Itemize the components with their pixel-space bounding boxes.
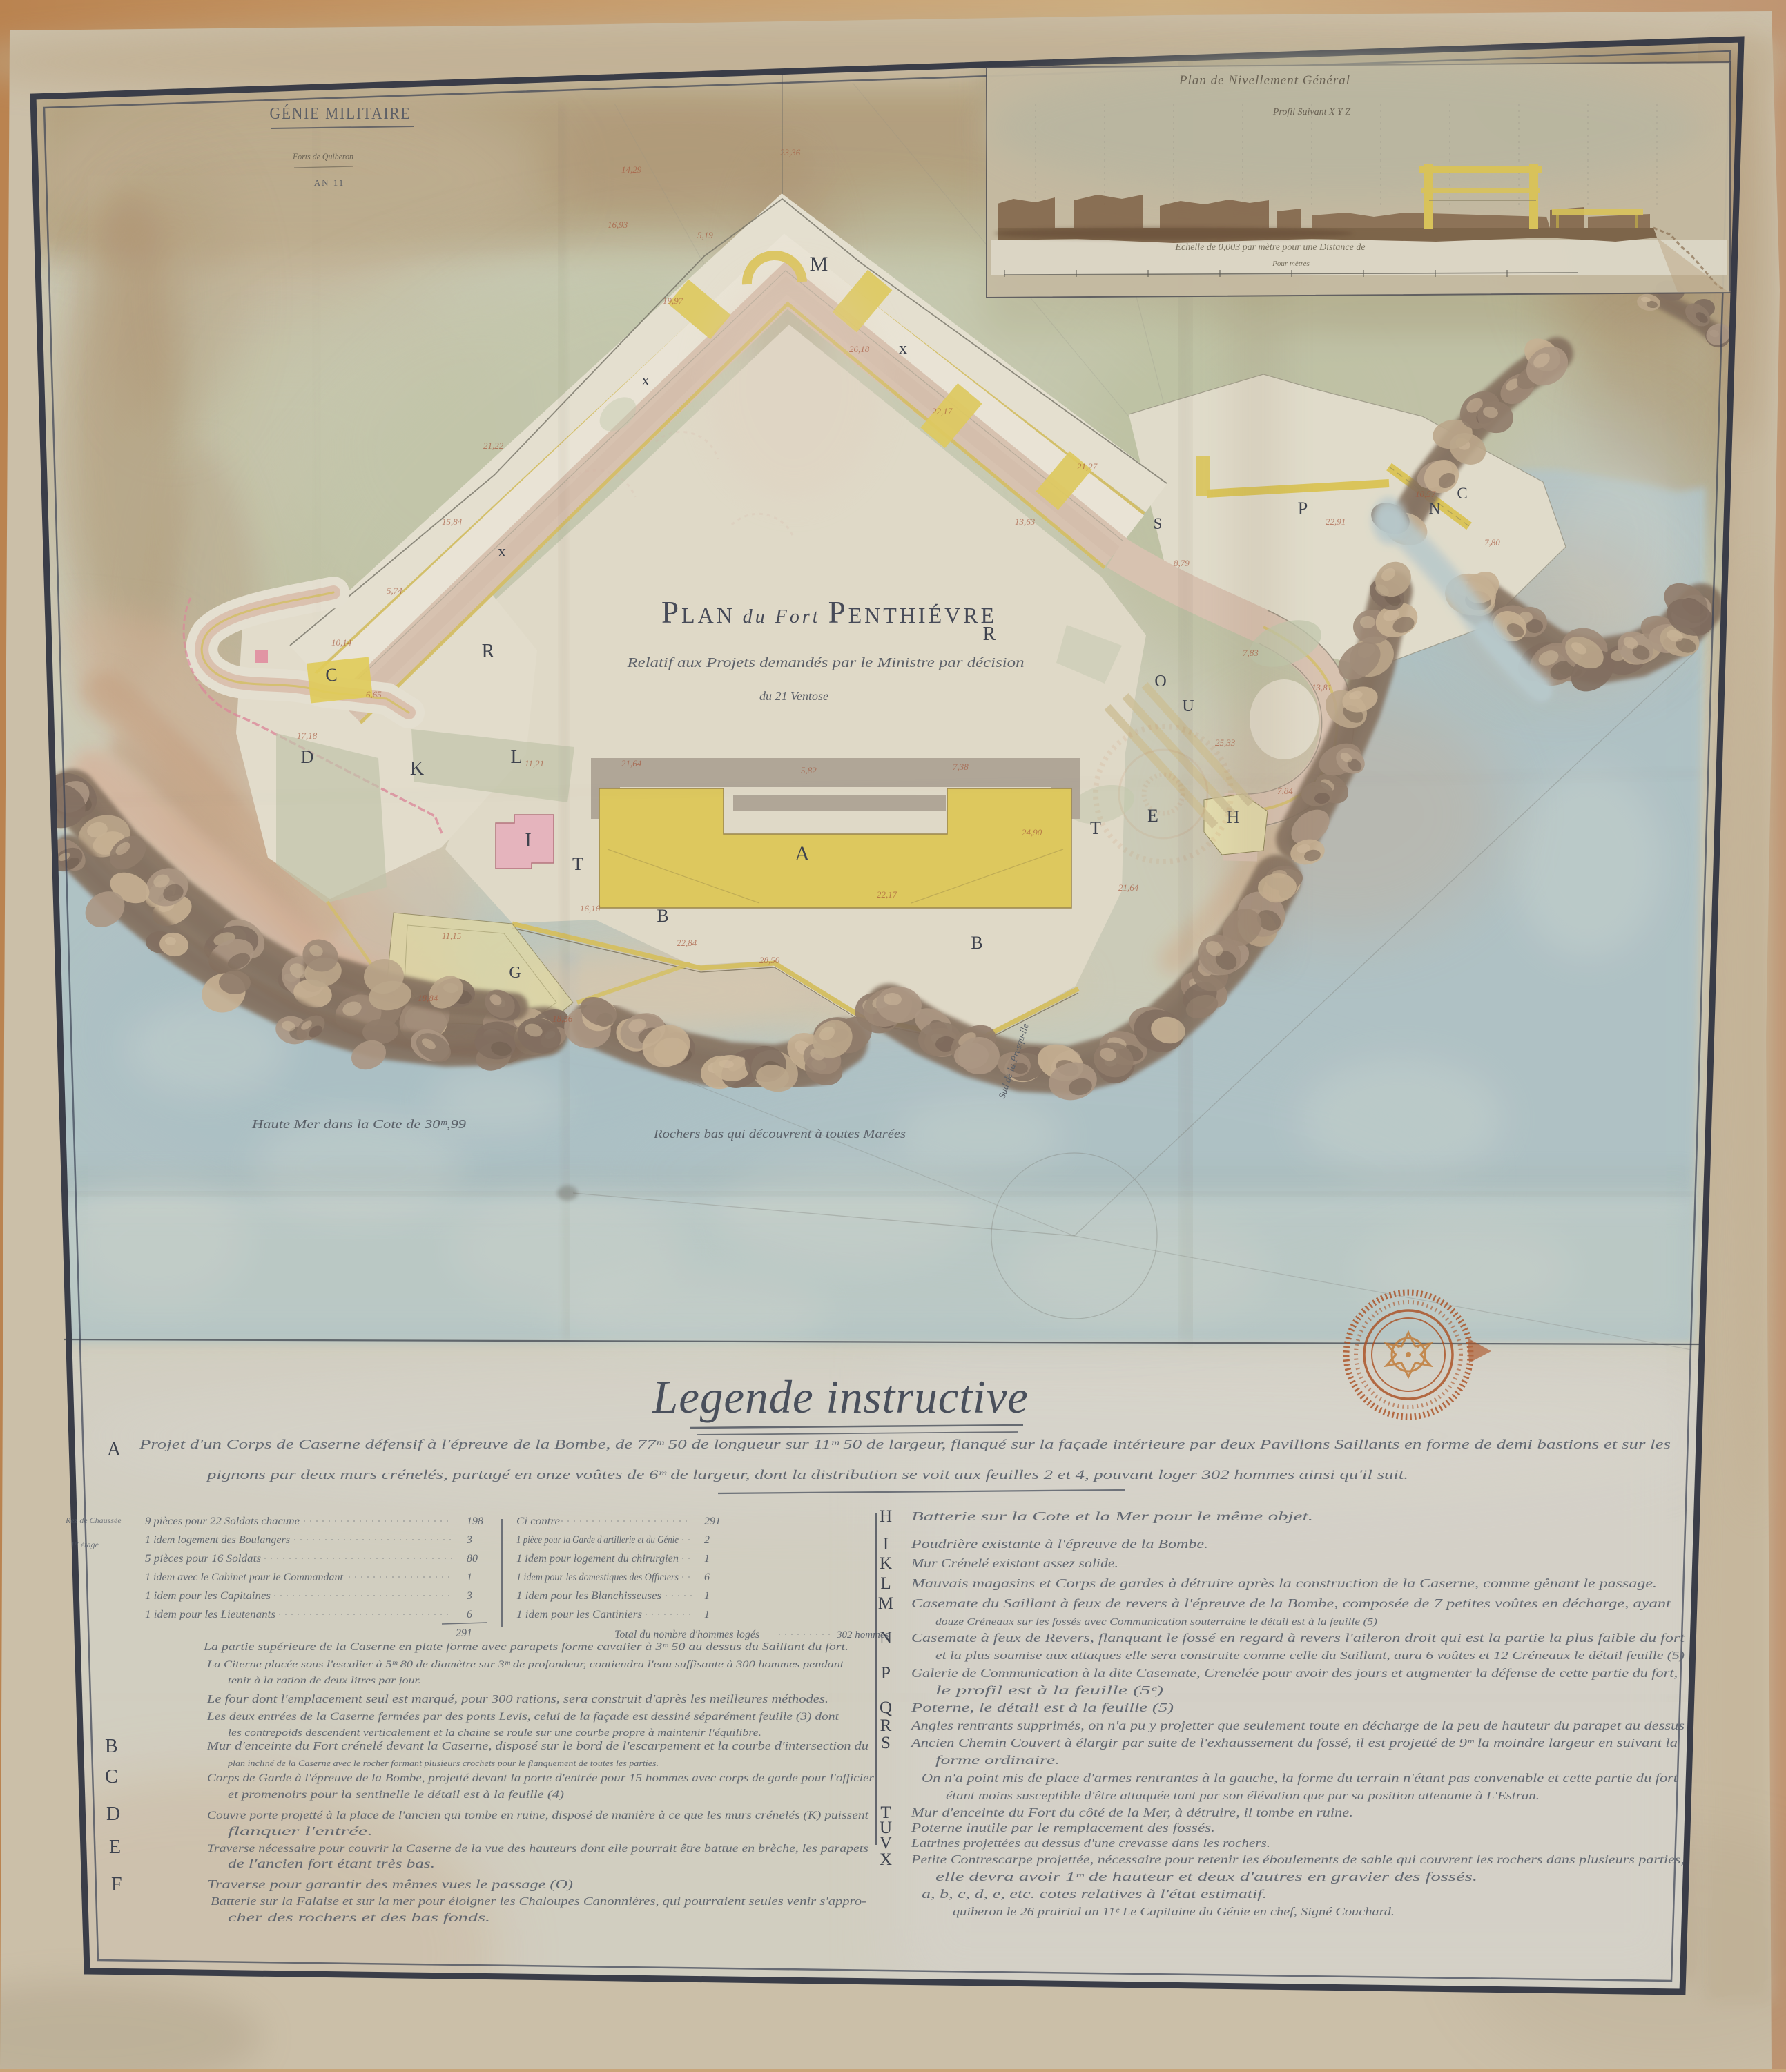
svg-text:forme ordinaire.: forme ordinaire. [935, 1753, 1060, 1767]
svg-text:5,19: 5,19 [697, 230, 713, 240]
svg-text:D: D [106, 1803, 120, 1825]
svg-text:I: I [883, 1535, 889, 1553]
svg-text:H: H [880, 1507, 892, 1526]
svg-text:7,84: 7,84 [1277, 786, 1293, 796]
svg-text:B: B [105, 1736, 118, 1757]
svg-text:Profil Suivant X Y Z: Profil Suivant X Y Z [1272, 107, 1350, 117]
svg-text:5,82: 5,82 [801, 765, 817, 775]
svg-text:douze Créneaux sur les fossés: douze Créneaux sur les fossés avec Commu… [935, 1616, 1377, 1627]
svg-text:Forts de Quiberon: Forts de Quiberon [292, 151, 353, 162]
svg-text:Corps de Garde à l'épreuve de: Corps de Garde à l'épreuve de la Bombe, … [207, 1772, 875, 1784]
svg-text:1 idem logement des Boulangers: 1 idem logement des Boulangers [145, 1534, 290, 1546]
svg-text:10,57: 10,57 [1415, 489, 1436, 499]
svg-text:V: V [880, 1834, 892, 1852]
svg-text:Rez de Chaussée: Rez de Chaussée [65, 1516, 122, 1525]
svg-text:18,56: 18,56 [552, 1014, 573, 1024]
svg-text:x: x [498, 543, 506, 561]
svg-text:Angles rentrants supprimés, on: Angles rentrants supprimés, on n'a pu y … [911, 1718, 1685, 1732]
svg-text:291: 291 [704, 1516, 721, 1527]
svg-text:21,64: 21,64 [621, 758, 642, 768]
svg-text:x: x [899, 340, 907, 358]
svg-text:1: 1 [704, 1553, 710, 1565]
svg-text:Projet d'un Corps de Caserne d: Projet d'un Corps de Caserne défensif à … [139, 1437, 1671, 1452]
svg-text:Ci contre: Ci contre [516, 1516, 560, 1527]
svg-text:19,97: 19,97 [663, 296, 683, 306]
svg-text:E: E [109, 1837, 121, 1858]
svg-text:17,18: 17,18 [297, 730, 318, 741]
svg-text:B: B [657, 906, 668, 926]
svg-text:A: A [795, 842, 810, 865]
svg-text:Ancien Chemin Couvert à élargi: Ancien Chemin Couvert à élargir par suit… [911, 1736, 1678, 1750]
svg-text:La partie supérieure de la Cas: La partie supérieure de la Caserne en pl… [203, 1641, 848, 1653]
svg-text:Echelle de 0,003 par mètre pou: Echelle de 0,003 par mètre pour une Dist… [1174, 242, 1365, 253]
svg-text:13,63: 13,63 [1015, 516, 1036, 527]
svg-text:11,15: 11,15 [442, 931, 462, 941]
svg-text:5,74: 5,74 [387, 585, 402, 596]
svg-text:5 pièces pour 16 Soldats: 5 pièces pour 16 Soldats [145, 1553, 261, 1565]
svg-text:1ᵉʳ étage: 1ᵉʳ étage [70, 1540, 99, 1549]
svg-text:N: N [1429, 500, 1441, 517]
svg-text:15,84: 15,84 [442, 516, 463, 527]
svg-text:A: A [107, 1439, 122, 1460]
svg-text:G: G [509, 964, 521, 982]
svg-text:les contrepoids descendent ver: les contrepoids descendent verticalement… [228, 1727, 761, 1739]
svg-text:28,50: 28,50 [759, 955, 780, 965]
svg-text:R: R [983, 623, 996, 645]
svg-text:21,64: 21,64 [1118, 882, 1139, 893]
svg-text:Legende instructive: Legende instructive [652, 1371, 1029, 1423]
svg-text:3: 3 [466, 1534, 472, 1546]
svg-text:elle devra avoir 1ᵐ de hauteur: elle devra avoir 1ᵐ de hauteur et deux d… [935, 1870, 1477, 1884]
svg-text:Q: Q [880, 1698, 892, 1717]
svg-text:K: K [410, 758, 424, 780]
svg-text:25,33: 25,33 [1215, 737, 1236, 748]
svg-text:13,81: 13,81 [1312, 682, 1332, 693]
svg-text:tenir à la ration de deux litr: tenir à la ration de deux litres par jou… [228, 1675, 421, 1685]
svg-text:23,36: 23,36 [780, 147, 801, 157]
svg-text:L: L [510, 746, 522, 768]
svg-text:M: M [878, 1594, 893, 1613]
svg-text:le profil est à la feuille (5ᵉ: le profil est à la feuille (5ᵉ) [935, 1683, 1163, 1697]
svg-text:14,29: 14,29 [621, 164, 642, 175]
svg-text:Mauvais magasins et Corps de g: Mauvais magasins et Corps de gardes à dé… [911, 1576, 1657, 1590]
svg-text:6: 6 [467, 1609, 472, 1620]
svg-text:flanquer l'entrée.: flanquer l'entrée. [228, 1824, 373, 1838]
svg-text:Relatif aux Projets demandés p: Relatif aux Projets demandés par le Mini… [626, 655, 1024, 670]
svg-text:X: X [880, 1850, 892, 1869]
svg-text:du 21 Ventose: du 21 Ventose [759, 689, 828, 703]
svg-text:Haute Mer dans la Cote de 30ᵐ,: Haute Mer dans la Cote de 30ᵐ,99 [251, 1117, 466, 1131]
svg-text:Traverse pour garantir des mêm: Traverse pour garantir des mêmes vues le… [207, 1877, 573, 1891]
svg-text:Les deux entrées de la Caserne: Les deux entrées de la Caserne fermées p… [206, 1711, 839, 1723]
svg-text:Mur d'enceinte du Fort du côté: Mur d'enceinte du Fort du côté de la Mer… [911, 1805, 1353, 1819]
svg-text:Rochers bas qui découvrent à t: Rochers bas qui découvrent à toutes Maré… [653, 1127, 906, 1141]
svg-text:1 pièce pour la Garde d'artill: 1 pièce pour la Garde d'artillerie et du… [516, 1534, 679, 1546]
svg-text:Latrines projettées au dessus: Latrines projettées au dessus d'une crev… [911, 1837, 1270, 1850]
svg-text:P: P [1298, 498, 1308, 519]
svg-text:Pour mètres: Pour mètres [1272, 260, 1310, 268]
svg-text:Batterie sur la Falaise et sur: Batterie sur la Falaise et sur la mer po… [211, 1895, 866, 1908]
svg-text:Mur Crénelé existant assez sol: Mur Crénelé existant assez solide. [911, 1556, 1118, 1570]
svg-text:11,21: 11,21 [525, 758, 544, 768]
svg-text:R: R [482, 641, 495, 662]
svg-text:1: 1 [704, 1590, 710, 1602]
svg-text:2: 2 [704, 1534, 710, 1546]
svg-text:1 idem pour les domestiques de: 1 idem pour les domestiques des Officier… [516, 1571, 679, 1583]
svg-text:24,90: 24,90 [1022, 827, 1042, 837]
svg-text:de l'ancien fort étant très ba: de l'ancien fort étant très bas. [228, 1857, 435, 1870]
svg-text:Batterie sur la Cote et la Mer: Batterie sur la Cote et la Mer pour le m… [911, 1509, 1313, 1523]
svg-text:Poterne inutile par le remplac: Poterne inutile par le remplacement des … [911, 1821, 1215, 1834]
svg-text:26,18: 26,18 [849, 344, 870, 354]
svg-text:D: D [301, 747, 314, 767]
svg-text:21,27: 21,27 [1077, 461, 1098, 472]
svg-text:21,22: 21,22 [483, 440, 504, 451]
svg-text:étant moins susceptible d'être: étant moins susceptible d'être attaquée … [946, 1789, 1540, 1802]
svg-text:1: 1 [467, 1571, 472, 1583]
svg-text:9 pièces pour 22 Soldats chacu: 9 pièces pour 22 Soldats chacune [145, 1516, 300, 1527]
svg-text:S: S [881, 1734, 891, 1752]
svg-text:7,80: 7,80 [1484, 537, 1500, 548]
svg-text:Poudrière existante à l'épreuv: Poudrière existante à l'épreuve de la Bo… [911, 1537, 1208, 1551]
svg-text:Casemate du Saillant à feux de: Casemate du Saillant à feux de revers à … [911, 1596, 1672, 1610]
svg-text:Couvre porte projetté à la pla: Couvre porte projetté à la place de l'an… [207, 1810, 869, 1821]
svg-text:R: R [880, 1716, 892, 1735]
svg-text:On n'a point mis de place d'ar: On n'a point mis de place d'armes rentra… [922, 1771, 1678, 1785]
svg-text:16,16: 16,16 [580, 903, 601, 913]
svg-text:P: P [881, 1664, 891, 1683]
svg-text:291: 291 [456, 1627, 472, 1639]
svg-text:GÉNIE MILITAIRE: GÉNIE MILITAIRE [270, 105, 411, 123]
svg-text:C: C [1457, 485, 1467, 502]
svg-text:I: I [525, 830, 531, 851]
svg-text:plan incliné de la Caserne ave: plan incliné de la Caserne avec le roche… [227, 1759, 659, 1768]
svg-text:T: T [572, 854, 583, 874]
svg-text:et la plus soumise aux attaque: et la plus soumise aux attaques elle ser… [935, 1649, 1685, 1662]
svg-text:La Citerne placée sous l'escal: La Citerne placée sous l'escalier à 5ᵐ 8… [206, 1659, 844, 1670]
svg-text:16,93: 16,93 [608, 220, 628, 230]
svg-text:3: 3 [466, 1590, 472, 1602]
svg-text:80: 80 [467, 1553, 478, 1565]
svg-text:S: S [1154, 515, 1163, 532]
svg-text:7,83: 7,83 [1243, 648, 1259, 658]
svg-text:E: E [1147, 806, 1158, 826]
svg-text:22,17: 22,17 [877, 889, 897, 900]
svg-text:18,84: 18,84 [418, 993, 438, 1003]
svg-text:1 idem pour les Lieutenants: 1 idem pour les Lieutenants [145, 1609, 275, 1620]
svg-text:C: C [105, 1766, 118, 1788]
svg-text:22,17: 22,17 [932, 406, 953, 416]
svg-text:6: 6 [704, 1571, 710, 1583]
svg-text:1 idem pour les Capitaines: 1 idem pour les Capitaines [145, 1590, 271, 1602]
svg-text:a, b, c, d, e, etc. cotes rela: a, b, c, d, e, etc. cotes relatives à l'… [922, 1887, 1267, 1901]
svg-text:Le four dont l'emplacement seu: Le four dont l'emplacement seul est marq… [206, 1692, 828, 1705]
svg-text:1 idem avec le Cabinet pour le: 1 idem avec le Cabinet pour le Commandan… [145, 1571, 344, 1583]
svg-text:1 idem pour logement du chirur: 1 idem pour logement du chirurgien [516, 1553, 679, 1565]
svg-text:et promenoirs pour la sentinel: et promenoirs pour la sentinelle le déta… [228, 1789, 564, 1801]
svg-text:Casemate à feux de Revers, fla: Casemate à feux de Revers, flanquant le … [911, 1631, 1686, 1645]
svg-text:Plan de Nivellement Général: Plan de Nivellement Général [1178, 73, 1350, 88]
svg-text:x: x [641, 371, 650, 389]
svg-text:302 hommes: 302 hommes [836, 1629, 889, 1640]
svg-text:10,14: 10,14 [331, 637, 352, 648]
svg-text:Total du nombre d'hommes logés: Total du nombre d'hommes logés [614, 1629, 759, 1640]
svg-text:quiberon le 26 prairial an 11ᵉ: quiberon le 26 prairial an 11ᵉ Le Capita… [953, 1905, 1395, 1918]
svg-text:Poterne, le détail est à la fe: Poterne, le détail est à la feuille (5) [910, 1701, 1174, 1714]
svg-text:C: C [325, 665, 337, 685]
svg-text:L: L [880, 1574, 891, 1593]
svg-text:1 idem pour les Cantiniers: 1 idem pour les Cantiniers [516, 1609, 642, 1620]
svg-text:cher des rochers et des bas fo: cher des rochers et des bas fonds. [228, 1910, 490, 1924]
svg-text:Mur d'enceinte du Fort crénelé: Mur d'enceinte du Fort crénelé devant la… [206, 1739, 868, 1752]
svg-text:K: K [880, 1554, 892, 1573]
svg-text:8,79: 8,79 [1174, 558, 1190, 568]
svg-text:M: M [810, 253, 828, 275]
svg-text:22,84: 22,84 [677, 938, 697, 948]
svg-text:B: B [971, 933, 982, 953]
svg-text:pignons par deux murs crénelés: pignons par deux murs crénelés, partagé … [205, 1468, 1408, 1482]
svg-text:H: H [1227, 807, 1240, 827]
svg-text:O: O [1154, 672, 1166, 690]
svg-text:Petite Contrescarpe projettée,: Petite Contrescarpe projettée, nécessair… [911, 1852, 1685, 1866]
svg-text:6,65: 6,65 [366, 689, 382, 699]
svg-text:198: 198 [467, 1516, 483, 1527]
svg-text:U: U [1182, 697, 1194, 715]
svg-text:22,91: 22,91 [1326, 516, 1346, 527]
svg-text:Traverse nécessaire pour couvr: Traverse nécessaire pour couvrir la Case… [207, 1843, 868, 1855]
svg-text:Galerie de Communication à la: Galerie de Communication à la dite Casem… [911, 1666, 1678, 1680]
svg-text:T: T [1090, 818, 1101, 838]
svg-text:F: F [111, 1874, 122, 1895]
svg-text:7,38: 7,38 [953, 762, 969, 772]
svg-text:1: 1 [704, 1609, 710, 1620]
svg-text:AN 11: AN 11 [314, 177, 345, 188]
svg-text:1 idem pour les Blanchisseuses: 1 idem pour les Blanchisseuses [516, 1590, 661, 1602]
